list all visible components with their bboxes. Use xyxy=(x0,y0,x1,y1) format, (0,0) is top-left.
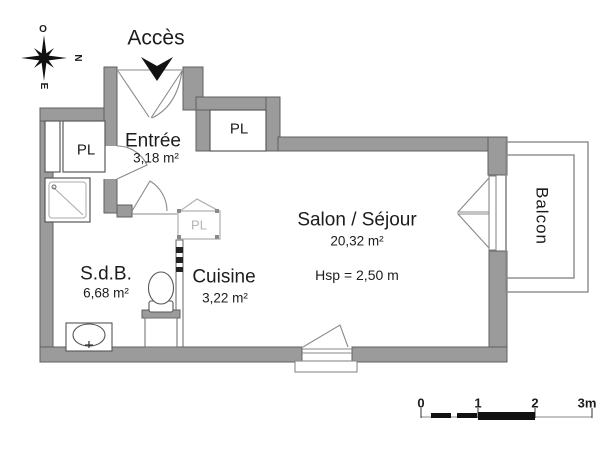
scale-tick-2: 2 xyxy=(531,397,538,410)
washbasin-icon xyxy=(66,323,112,351)
corridor-door-symbol xyxy=(132,181,167,211)
scale-tick-1: 1 xyxy=(474,397,481,410)
compass-letter-top: O xyxy=(39,25,47,35)
room-name-sdb: S.d.B. xyxy=(80,265,132,284)
toilet-icon xyxy=(142,272,180,347)
room-name-cuisine: Cuisine xyxy=(192,268,255,287)
wall-balcony-top-jamb xyxy=(488,137,507,175)
duct-box xyxy=(45,121,60,172)
kitchen-closet-door-flap xyxy=(180,199,219,211)
wall-entry-closet-left xyxy=(196,110,210,151)
room-area-salon: 20,32 m² xyxy=(330,234,383,248)
room-area-cuisine: 3,22 m² xyxy=(202,291,248,305)
closet-label-entry: PL xyxy=(230,122,248,137)
scale-bar xyxy=(421,408,592,420)
wall-entry-left xyxy=(104,67,117,213)
wall-right-lower xyxy=(489,251,507,362)
scale-tick-3: 3m xyxy=(578,397,597,410)
compass-rose-icon xyxy=(21,35,67,81)
access-label: Accès xyxy=(127,28,184,49)
scale-tick-0: 0 xyxy=(417,397,424,410)
access-arrow-icon xyxy=(141,57,173,81)
partition-hatch xyxy=(176,247,183,272)
wall-entry-foot xyxy=(117,205,132,217)
compass-letter-right: N xyxy=(72,54,82,61)
closet-label-kitchen: PL xyxy=(191,219,207,232)
shower-icon xyxy=(45,178,90,222)
entry-door-symbol xyxy=(117,70,183,118)
room-name-salon: Salon / Séjour xyxy=(297,211,416,230)
wall-top-sdb xyxy=(40,108,107,121)
wall-bottom-right xyxy=(352,347,507,362)
ceiling-height-label: Hsp = 2,50 m xyxy=(315,268,399,282)
room-name-entree: Entrée xyxy=(125,132,181,151)
closet-label-sdb: PL xyxy=(77,143,95,158)
floor-plan: Accès Entrée 3,18 m² PL PL PL Salon / Sé… xyxy=(0,0,600,450)
room-area-sdb: 6,68 m² xyxy=(83,286,129,300)
wall-salon-top xyxy=(278,137,490,151)
compass-letter-bottom: E xyxy=(38,83,48,90)
french-door-symbol xyxy=(458,176,496,250)
room-area-entree: 3,18 m² xyxy=(133,151,179,165)
walls xyxy=(40,67,507,362)
salon-window-symbol xyxy=(295,325,357,372)
room-name-balcon: Balcon xyxy=(534,187,551,245)
